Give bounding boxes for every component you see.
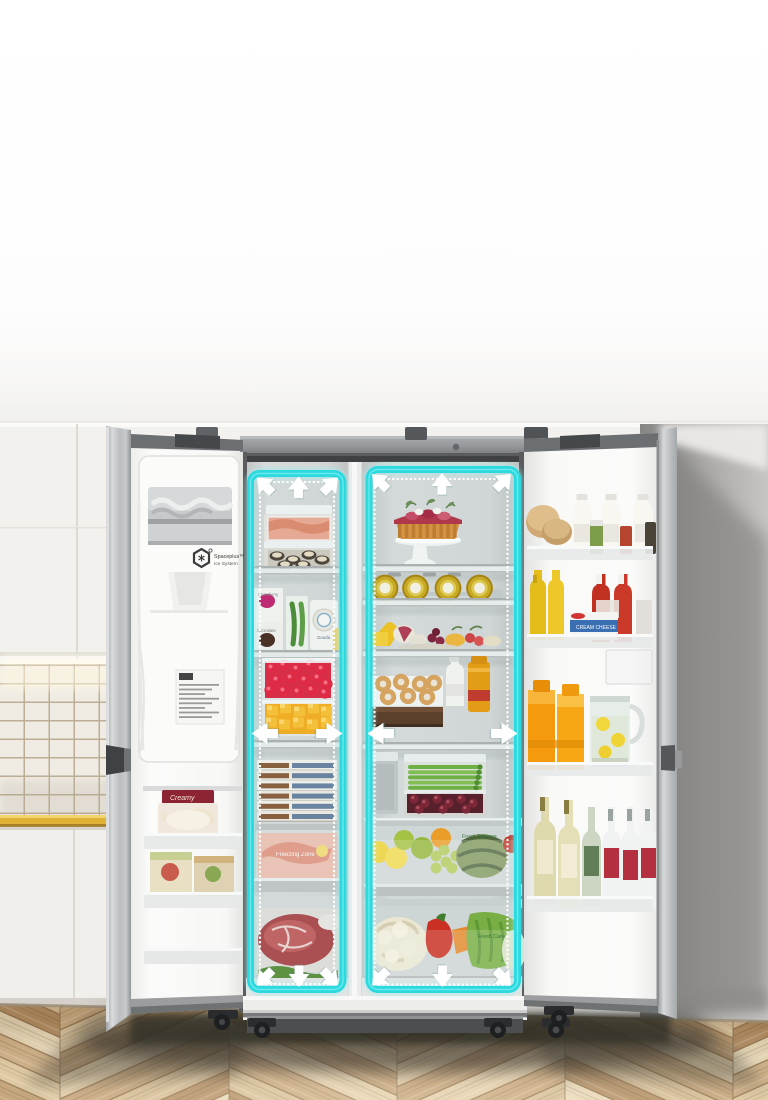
svg-text:Spaceplus™: Spaceplus™ — [214, 554, 245, 560]
svg-text:Creamy: Creamy — [170, 795, 195, 802]
svg-text:Ice System: Ice System — [214, 561, 238, 567]
svg-text:CREAM CHEESE: CREAM CHEESE — [576, 625, 617, 631]
